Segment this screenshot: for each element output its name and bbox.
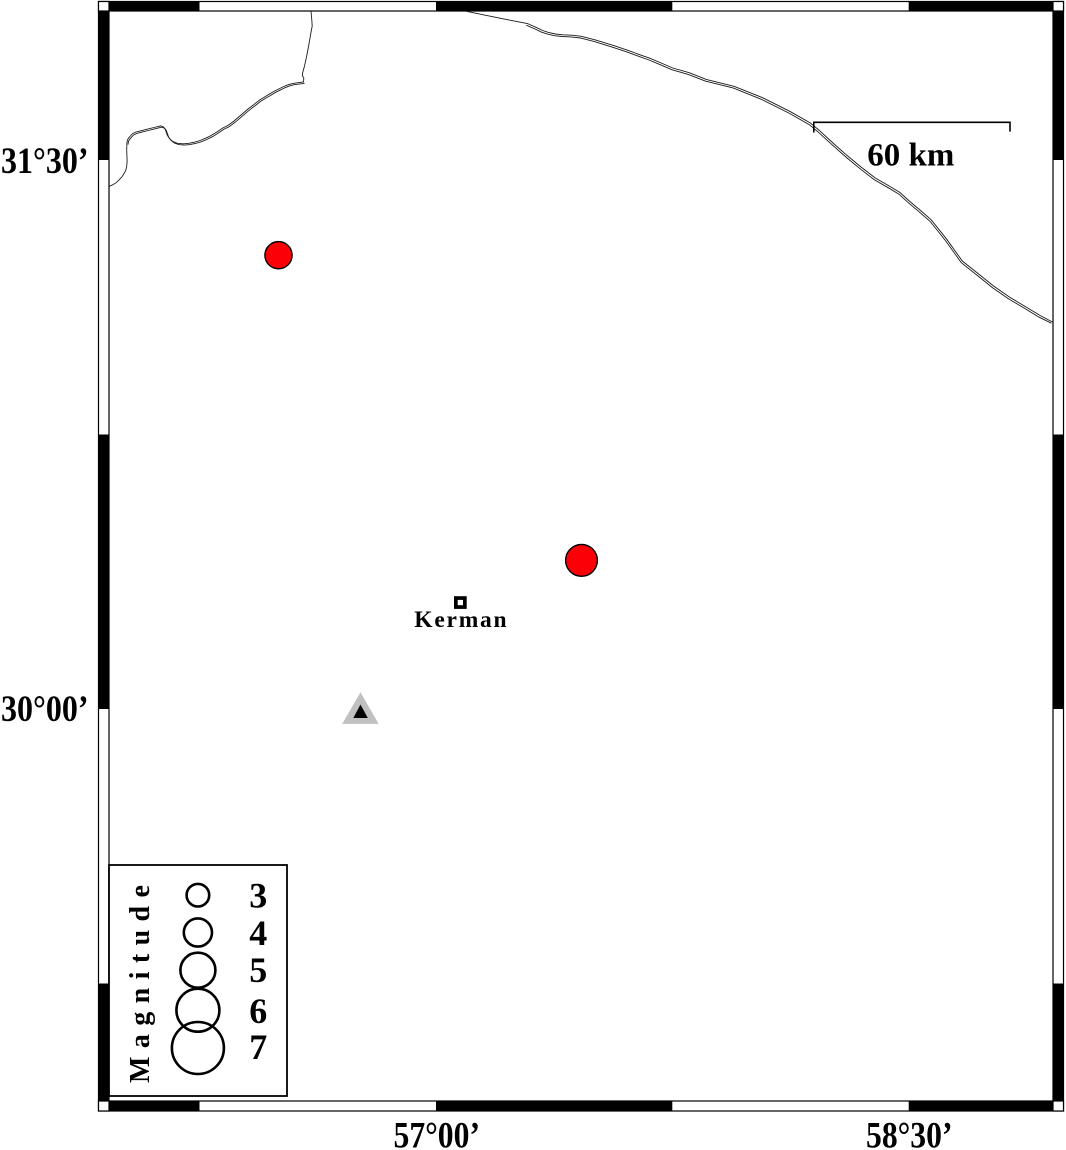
svg-text:Kerman: Kerman bbox=[414, 607, 506, 633]
svg-text:57°00’: 57°00’ bbox=[394, 1114, 481, 1150]
svg-text:30°00’: 30°00’ bbox=[1, 688, 89, 729]
svg-text:6: 6 bbox=[249, 991, 267, 1031]
svg-text:58°30’: 58°30’ bbox=[866, 1114, 953, 1150]
svg-text:5: 5 bbox=[249, 950, 267, 990]
svg-text:60 km: 60 km bbox=[867, 138, 954, 174]
svg-text:3: 3 bbox=[249, 876, 267, 916]
svg-text:31°30’: 31°30’ bbox=[1, 140, 89, 181]
svg-text:7: 7 bbox=[249, 1027, 267, 1067]
svg-text:4: 4 bbox=[249, 913, 267, 953]
